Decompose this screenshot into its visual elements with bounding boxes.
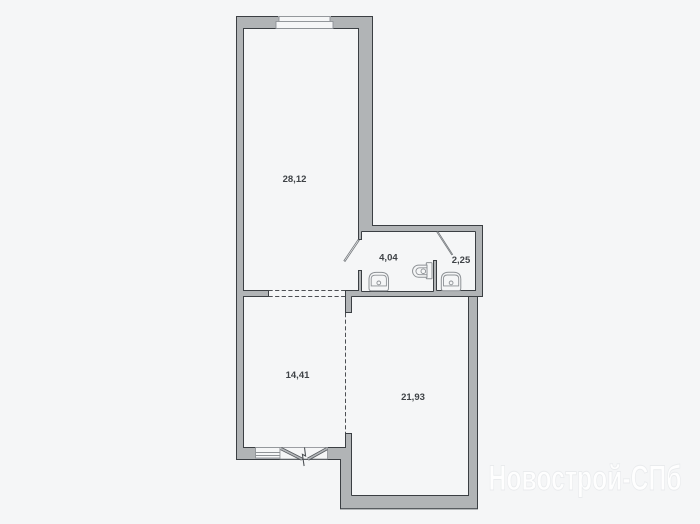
svg-text:28,12: 28,12 [283, 174, 307, 185]
svg-text:2,25: 2,25 [452, 255, 471, 266]
svg-text:14,41: 14,41 [286, 370, 310, 381]
svg-text:Новострой-СПб: Новострой-СПб [489, 458, 682, 498]
svg-text:4,04: 4,04 [379, 252, 398, 263]
svg-text:21,93: 21,93 [401, 392, 425, 403]
